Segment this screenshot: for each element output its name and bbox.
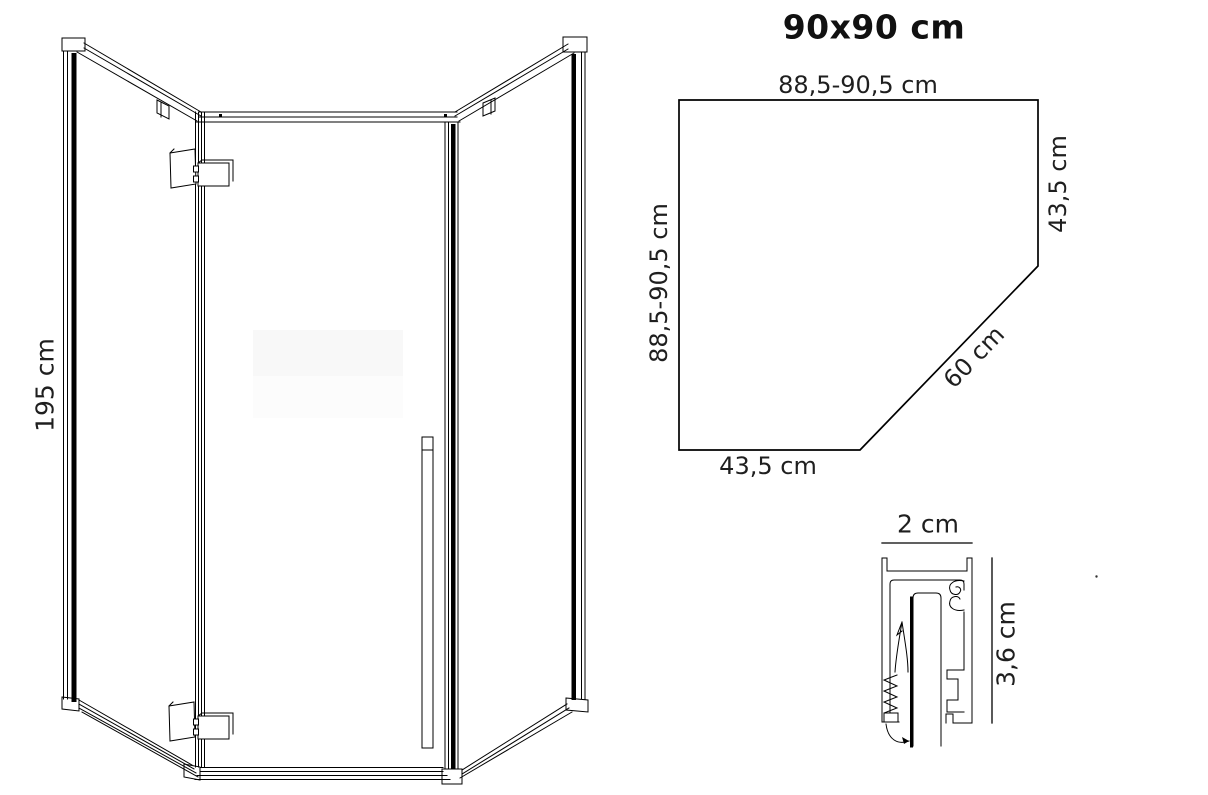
glass-reflection: [253, 330, 403, 418]
page-title: 90x90 cm: [783, 11, 966, 44]
shower-enclosure-front-view: [62, 37, 588, 784]
door-handle: [422, 437, 433, 748]
door-panel: [184, 112, 462, 784]
profile-cross-section: [882, 543, 1098, 746]
seal-gasket: [884, 622, 909, 744]
right-fixed-panel: [455, 37, 588, 778]
wall-bracket-left: [157, 100, 169, 119]
left-fixed-panel: [62, 38, 201, 777]
dimension-label-profile-width: 2 cm: [897, 512, 959, 537]
dimension-label-bottom-width: 43,5 cm: [719, 454, 817, 478]
dimension-label-height: 195 cm: [33, 338, 58, 432]
dimension-label-profile-height: 3,6 cm: [994, 601, 1019, 687]
diagram-line-art: [0, 0, 1208, 795]
dimension-label-left-depth: 88,5-90,5 cm: [647, 203, 671, 363]
print-speck: [1095, 575, 1097, 577]
top-view-outline: [679, 100, 1038, 450]
dimension-label-right-side: 43,5 cm: [1046, 135, 1070, 233]
glass-pane-section: [912, 593, 942, 746]
dimension-label-top-width: 88,5-90,5 cm: [778, 73, 938, 97]
retaining-clip: [950, 581, 964, 611]
shower-enclosure-dimension-diagram: 90x90 cm 195 cm 88,5-90,5 cm 88,5-90,5 c…: [0, 0, 1208, 795]
